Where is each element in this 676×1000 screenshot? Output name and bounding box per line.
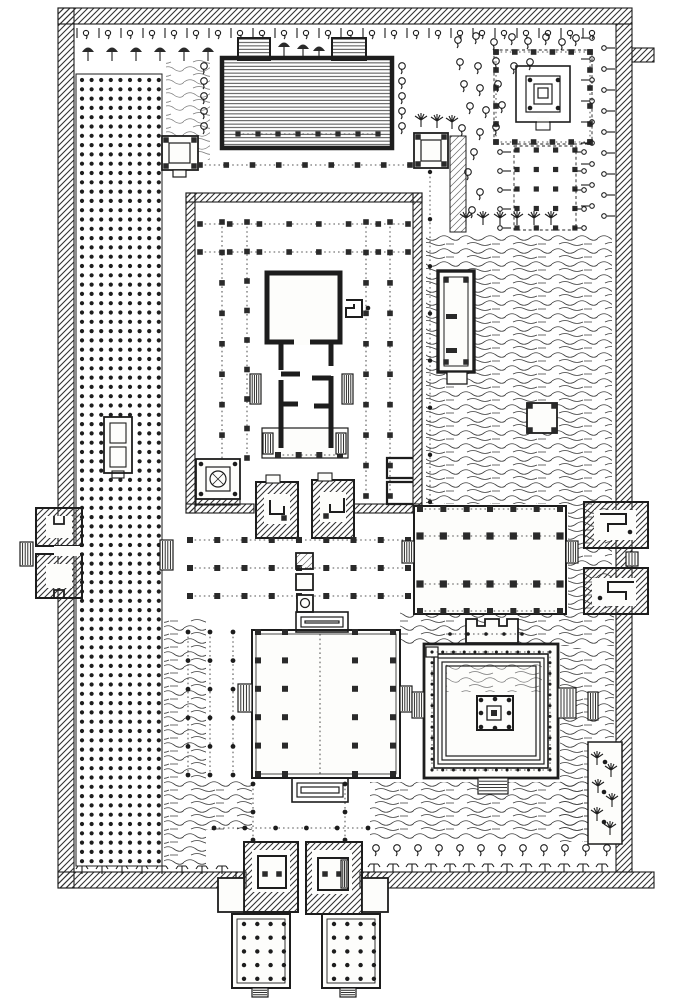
axis-shrine-small <box>466 619 518 643</box>
cloister-col-w2 <box>244 219 250 461</box>
north-tank-tower-east <box>332 38 366 60</box>
central-shrine-cella <box>267 273 340 342</box>
central-shrine-stair-east <box>342 374 353 404</box>
nw-corner-shrine-platform-edge <box>196 499 240 505</box>
central-shrine-porch-platform <box>262 428 348 458</box>
south-anteroom-west <box>218 878 244 912</box>
north-umbrella-trees-west <box>82 48 214 62</box>
central-shrine-stair-west <box>250 374 261 404</box>
ne-hall-border <box>514 146 576 230</box>
plaza-row-1 <box>187 537 411 543</box>
south-hall-east-step <box>340 988 356 997</box>
stake-trees-east-wall-col2 <box>602 46 615 219</box>
pyramid-terrace-texture <box>446 664 542 692</box>
east-gate-south-pier <box>598 596 603 601</box>
east-gate-north-pier <box>628 530 633 535</box>
terrain-southwest-strip <box>164 618 206 866</box>
axis-altar-middle <box>296 574 313 590</box>
east-long-building-step <box>447 372 467 384</box>
north-tank <box>222 58 392 148</box>
east-long-building <box>438 271 474 372</box>
temple-plan-figure <box>0 0 676 1000</box>
cloister-row-2 <box>197 249 411 255</box>
great-hall-stair-west <box>238 684 252 712</box>
channel-strip <box>450 136 466 232</box>
main-enclosure-wall-east <box>413 193 422 513</box>
terrain-south-of-hall <box>206 780 252 830</box>
orchard-east-stair <box>160 540 173 570</box>
west-gate-north-court <box>46 516 72 538</box>
great-hall-platform <box>252 630 400 778</box>
main-enclosure-wall-south-east <box>354 504 422 513</box>
forecourt-colonnade <box>197 162 413 168</box>
ne-shrine-corner-dots <box>528 78 561 111</box>
east-ghat <box>588 692 598 720</box>
west-flank-col-3 <box>231 630 236 778</box>
ne-shrine-terraces <box>516 66 570 122</box>
south-gopura-west-step <box>266 475 280 483</box>
pyramid-stair-east <box>558 688 576 718</box>
great-hall-south-porch <box>292 778 348 802</box>
west-gate-passage-gap <box>54 546 80 556</box>
main-enclosure-wall-north <box>186 193 422 202</box>
south-gate-west-chamber <box>258 856 286 888</box>
pyramid-summit-core <box>491 710 497 716</box>
central-shrine-door-gap <box>294 336 310 345</box>
ne-hall-columns <box>514 147 577 230</box>
great-hall-stair-east <box>400 686 412 712</box>
main-enclosure-wall-west <box>186 193 195 513</box>
central-shrine-stair-se <box>336 433 346 454</box>
ne-shrine-cella <box>538 88 548 98</box>
outer-wall-south-east-section <box>368 872 654 888</box>
pyramid-stair-west <box>412 692 424 718</box>
axis-altar-south <box>297 595 313 612</box>
ne-palm-row <box>460 211 557 225</box>
axis-altar-north <box>296 553 313 569</box>
east-hall-platform <box>414 506 566 614</box>
stake-trees-east-of-ne-hall <box>573 150 586 231</box>
west-gate-outer-stair <box>20 542 33 566</box>
orchard-shrine-base <box>104 417 132 473</box>
east-hall-stair-west <box>402 541 414 563</box>
east-long-building-cross-wall-1 <box>446 314 457 319</box>
ritual-annex-dot <box>366 306 371 311</box>
north-tank-tower-west <box>238 38 270 60</box>
ne-shrine-step <box>536 122 550 130</box>
south-gate-east-stair <box>341 860 348 888</box>
east-gate-middle-stair <box>626 552 638 566</box>
tank-corner-palms <box>415 113 458 129</box>
outer-wall-ne-projection <box>632 48 654 62</box>
west-pavilion-step <box>173 170 186 177</box>
south-shrub-row <box>373 845 611 856</box>
south-hall-west <box>232 914 290 988</box>
pyramid-stair-south <box>478 778 508 794</box>
cloister-col-w1 <box>219 219 225 499</box>
outer-wall-west <box>58 8 74 888</box>
ritual-annex-spiral <box>346 300 362 317</box>
south-gopura-west-pier <box>281 515 287 521</box>
ne-court-colonnade-east <box>587 49 593 145</box>
east-hall-stair-east <box>566 541 578 563</box>
west-gate-south-court <box>46 564 72 588</box>
central-shrine-stair-sw <box>263 433 273 454</box>
temple-plan-drawing <box>0 0 676 1000</box>
south-palm-row <box>368 864 608 872</box>
south-gopura-east-step <box>318 473 332 481</box>
outer-wall-south-west-section <box>58 872 236 888</box>
cloister-col-e2 <box>387 219 393 499</box>
east-long-building-cross-wall-2 <box>446 348 457 353</box>
south-hall-west-step <box>252 988 268 997</box>
west-flank-col-2 <box>208 630 213 778</box>
south-anteroom-east <box>362 878 388 912</box>
shrub-col-east-of-tank <box>399 63 406 134</box>
central-shrine-cross-stubs <box>281 374 331 406</box>
outer-wall-north <box>58 8 632 24</box>
cloister-col-e1 <box>363 219 369 499</box>
se-corner-room-2 <box>387 482 413 504</box>
cloister-row-1 <box>197 221 411 227</box>
south-gopura-east-pier <box>323 513 329 519</box>
plan-sheet <box>0 0 676 1000</box>
south-hall-east <box>322 914 380 988</box>
